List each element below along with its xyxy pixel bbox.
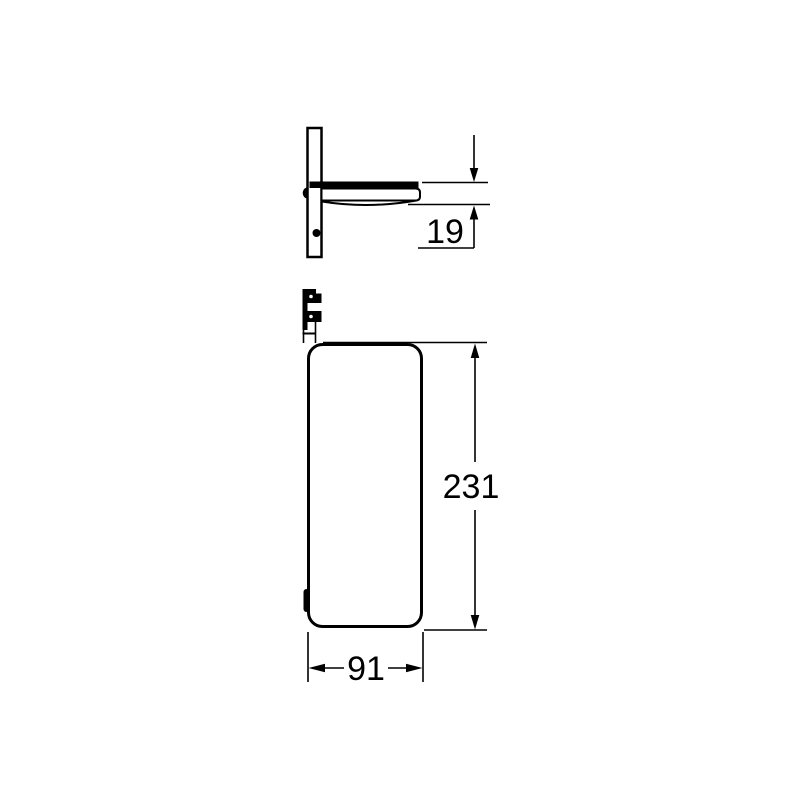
front-view: 231 91 <box>303 289 500 688</box>
bracket-hole-top <box>309 295 313 299</box>
side-view: 19 <box>303 128 490 257</box>
fixing-pin <box>303 188 308 199</box>
arrowhead-up-icon <box>471 344 480 359</box>
dimension-depth-label: 19 <box>426 213 464 251</box>
screw-hole <box>313 229 321 237</box>
bracket-hole-bottom <box>309 315 313 319</box>
edge-tab <box>304 589 310 612</box>
arrowhead-left-icon <box>309 664 326 673</box>
dimension-width: 91 <box>308 632 423 688</box>
arrowhead-up-icon <box>470 206 479 220</box>
shelf-body <box>322 189 421 201</box>
arrowhead-right-icon <box>406 664 423 673</box>
dimension-height-label: 231 <box>443 468 500 506</box>
dimension-width-label: 91 <box>347 650 385 688</box>
drawing-canvas: 19 231 <box>0 0 800 800</box>
shelf-top-surface <box>310 182 419 189</box>
wall-plate <box>308 128 322 257</box>
technical-drawing: 19 231 <box>0 0 800 800</box>
arrowhead-down-icon <box>471 615 480 630</box>
shelf-front-panel <box>309 345 422 627</box>
arrowhead-down-icon <box>470 168 479 182</box>
